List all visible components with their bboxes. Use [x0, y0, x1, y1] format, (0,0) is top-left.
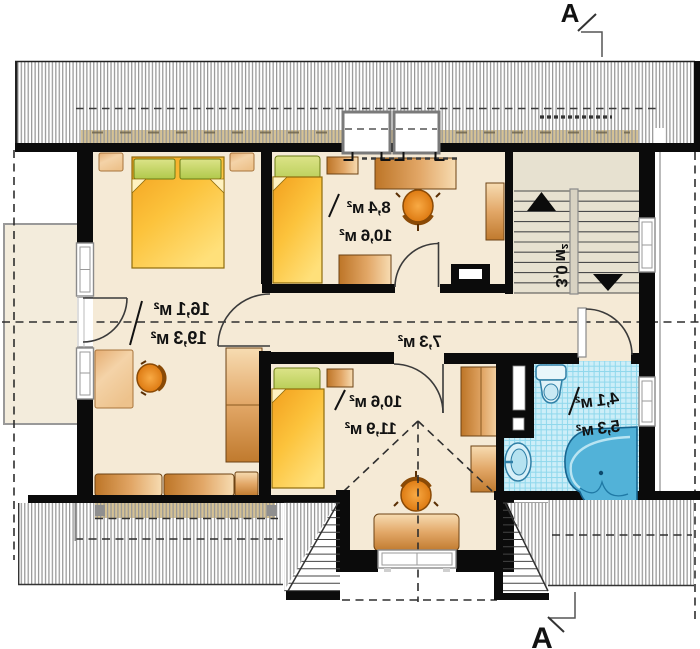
- svg-text:10,6 м²: 10,6 м²: [349, 392, 402, 411]
- svg-text:3,0 м²: 3,0 м²: [552, 243, 571, 287]
- svg-text:19,3 м²: 19,3 м²: [151, 328, 207, 348]
- svg-text:11,9 м²: 11,9 м²: [344, 419, 396, 438]
- svg-text:8,4 м²: 8,4 м²: [346, 198, 390, 217]
- svg-text:7,3 м²: 7,3 м²: [397, 332, 441, 351]
- svg-text:10,6 м²: 10,6 м²: [339, 226, 392, 245]
- svg-text:A: A: [531, 622, 553, 649]
- svg-text:A: A: [561, 0, 580, 28]
- svg-text:16,1 м²: 16,1 м²: [154, 299, 210, 319]
